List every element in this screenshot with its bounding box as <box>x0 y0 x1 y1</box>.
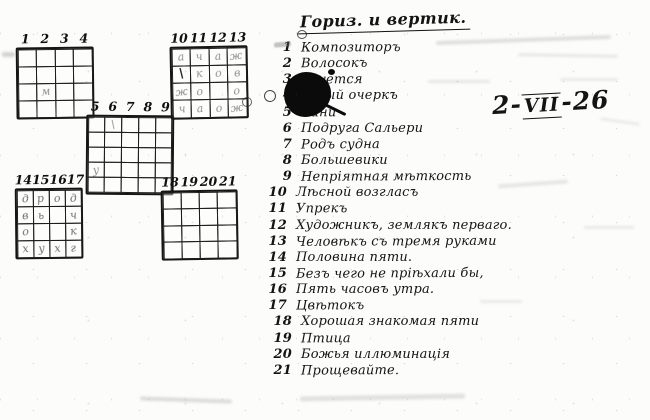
clue-row: 21Прощевайте. <box>266 363 512 379</box>
clue-row: 9Непріятная мѣткость <box>266 169 512 185</box>
ghost-smudge <box>584 226 634 229</box>
grid-cell <box>121 162 139 178</box>
grid-cell <box>33 223 50 241</box>
crossword-grid-top-right: 10111213 ачаж\ковжоочаож <box>169 25 249 119</box>
clue-row: 10Лѣсной возгласъ <box>261 185 512 201</box>
grid-column-numbers: 56789 <box>86 95 174 116</box>
date-month-roman: VII <box>521 92 562 119</box>
grid-cell <box>54 48 74 66</box>
grid-cell <box>218 240 238 258</box>
grid-cell <box>73 65 93 83</box>
grid-cell: о <box>48 189 65 207</box>
pencil-letter: в <box>233 66 241 80</box>
clue-text: Прощевайте. <box>301 363 399 379</box>
grid-cell <box>17 49 37 67</box>
grid-cell <box>181 241 201 259</box>
pencil-letter: г <box>70 242 77 256</box>
clue-number: 13 <box>261 234 287 249</box>
grid-cell: о <box>208 64 228 83</box>
grid-cell <box>87 147 105 163</box>
grid-cell <box>88 116 106 132</box>
clue-text: Человѣкъ съ тремя руками <box>296 233 497 249</box>
clue-number: 19 <box>266 331 292 346</box>
grid-cell <box>138 117 156 133</box>
clue-text: Упрекъ <box>296 202 347 217</box>
pencil-letter: в <box>21 209 29 223</box>
pencil-letter: у <box>37 242 45 256</box>
grid-cell <box>138 147 156 163</box>
grid-column-number: 7 <box>126 100 135 113</box>
grid-column-number: 15 <box>32 173 50 186</box>
clue-row: 11Упрекъ <box>261 201 512 217</box>
grid-cell <box>199 208 219 226</box>
pencil-letter: \ <box>111 118 116 131</box>
grid-cell <box>48 206 65 224</box>
grid-cell <box>199 241 219 259</box>
grid-cell <box>138 162 156 178</box>
grid-column-numbers: 10111213 <box>169 25 247 46</box>
grid-column-number: 6 <box>108 100 117 113</box>
grid-cell: р <box>32 189 49 207</box>
grid-cell <box>36 65 56 83</box>
grid-column-number: 21 <box>219 175 237 188</box>
pencil-letter: о <box>215 101 223 115</box>
grid-cell: д <box>16 190 33 208</box>
grid-cell <box>73 48 93 66</box>
grid-cell <box>199 191 219 209</box>
crossword-grid-bottom-left: 14151617 дродвьчокхухг <box>15 168 84 260</box>
grid-cell: д <box>64 189 81 207</box>
grid-cell: в <box>16 206 33 224</box>
grid-cell <box>163 241 183 259</box>
clue-text: Пять часовъ утра. <box>296 282 434 297</box>
grid-cell <box>121 177 139 193</box>
pencil-letter: о <box>53 191 61 205</box>
grid-cell: г <box>65 239 82 257</box>
grid-column-number: 1 <box>21 33 30 46</box>
grid-cell: к <box>65 223 82 241</box>
clue-text: Большевики <box>301 153 388 168</box>
pencil-letter: ч <box>69 208 77 222</box>
grid-cells <box>161 189 239 260</box>
grid-column-number: 12 <box>209 31 227 44</box>
grid-cell <box>55 99 75 117</box>
clue-number: 18 <box>266 314 292 329</box>
grid-cell: х <box>49 240 66 258</box>
grid-cell <box>104 147 122 163</box>
grid-cell <box>181 224 201 242</box>
grid-column-number: 9 <box>161 101 170 114</box>
clue-number: 14 <box>261 250 287 265</box>
grid-column-number: 17 <box>67 173 85 186</box>
grid-cell <box>54 65 74 83</box>
clue-text: Половина пяти. <box>296 250 412 265</box>
grid-column-numbers: 14151617 <box>15 168 83 189</box>
grid-column-number: 14 <box>15 174 33 187</box>
ghost-smudge <box>428 80 490 83</box>
grid-column-number: 10 <box>170 32 188 45</box>
pencil-letter: ч <box>195 50 203 64</box>
grid-cell <box>181 208 201 226</box>
clue-row: 8Большевики <box>266 153 512 169</box>
grid-cell <box>36 99 56 117</box>
clue-number: 20 <box>266 347 292 362</box>
grid-cell <box>121 116 139 132</box>
ghost-smudge <box>140 396 232 403</box>
pencil-letter: д <box>21 192 29 206</box>
ink-ring-mark <box>242 97 252 107</box>
pencil-letter: ж <box>229 49 243 63</box>
grid-cell: о <box>209 99 229 118</box>
clue-number: 21 <box>266 363 292 378</box>
ghost-smudge <box>600 117 640 126</box>
clue-text: Лѣсной возгласъ <box>296 185 419 200</box>
grid-cell <box>121 147 139 163</box>
clue-row: 18Хорошая знакомая пяти <box>266 314 512 330</box>
clue-text: Божья иллюминація <box>301 347 450 362</box>
grid-cell: у <box>33 240 50 258</box>
grid-cell: а <box>191 99 211 118</box>
grid-cell <box>121 132 139 148</box>
grid-cells: дродвьчокхухг <box>15 188 84 260</box>
grid-column-number: 3 <box>60 32 69 45</box>
pencil-letter: у <box>92 163 100 177</box>
grid-cell <box>87 177 105 193</box>
ghost-smudge <box>436 35 611 45</box>
clue-row: 13Человѣкъ съ тремя руками <box>261 234 512 250</box>
clue-row: 2Волосокъ <box>266 56 512 72</box>
grid-column-number: 19 <box>180 176 198 189</box>
grid-cell: ж <box>227 47 247 66</box>
clue-number: 12 <box>261 218 287 233</box>
grid-cell <box>163 225 183 243</box>
ghost-smudge <box>480 300 522 303</box>
clue-number: 10 <box>261 185 287 200</box>
clue-number: 6 <box>266 121 292 136</box>
grid-cell: ч <box>64 206 81 224</box>
grid-cell: у <box>87 162 105 178</box>
clue-text: Птица <box>301 331 351 346</box>
grid-column-numbers: 1234 <box>15 27 93 48</box>
clue-number: 7 <box>266 137 292 152</box>
clue-row: 14Половина пяти. <box>261 250 512 266</box>
clue-row: 7Родъ судна <box>266 137 512 153</box>
clue-number: 9 <box>266 169 292 184</box>
clue-row: 6Подруга Сальери <box>266 121 512 137</box>
pencil-letter: к <box>196 67 204 81</box>
grid-cell <box>217 224 237 242</box>
grid-cell: ь <box>32 206 49 224</box>
pencil-letter: а <box>196 102 204 116</box>
pencil-letter: а <box>214 50 222 64</box>
grid-cell <box>209 82 229 101</box>
pencil-letter: \ <box>178 67 185 82</box>
date-annotation: 2-VII-26 <box>491 85 610 120</box>
grid-cell: к <box>190 65 210 84</box>
grid-cell <box>199 224 219 242</box>
clue-row: 15Безъ чего не пріѣхали бы, <box>261 266 512 282</box>
grid-column-number: 16 <box>49 173 67 186</box>
pencil-letter: х <box>54 242 62 256</box>
clue-text: Композиторъ <box>301 40 401 56</box>
clue-text: Художникъ, землякъ перваго. <box>296 218 512 233</box>
date-day: 2- <box>491 90 522 121</box>
clue-row: 17Цвѣтокъ <box>261 298 512 314</box>
grid-cell <box>138 132 156 148</box>
grid-cell: ч <box>172 100 192 119</box>
clue-number: 11 <box>261 201 287 216</box>
clue-number: 2 <box>266 56 292 71</box>
grid-cell: в <box>227 64 247 83</box>
grid-cell <box>137 177 155 193</box>
pencil-letter: ч <box>178 102 186 116</box>
grid-cell: \ <box>104 116 122 132</box>
pencil-letter: ь <box>37 208 44 222</box>
grid-cell <box>155 147 173 163</box>
grid-column-number: 13 <box>229 31 247 44</box>
grid-cell <box>36 48 56 66</box>
grid-cell <box>104 131 122 147</box>
clue-row: 16Пять часовъ утра. <box>261 282 512 298</box>
grid-column-number: 11 <box>190 32 208 45</box>
ghost-smudge <box>2 52 15 57</box>
grid-cell: а <box>171 48 191 67</box>
scanned-crossword-page: 1234 м 56789 \у 10111213 ачаж\ковжоочаож… <box>0 0 650 420</box>
grid-cell <box>18 100 38 118</box>
grid-cells: ачаж\ковжоочаож <box>169 45 248 119</box>
crossword-grid-top-left: 1234 м <box>15 27 94 120</box>
grid-cell <box>217 191 237 209</box>
clue-row: 12Художникъ, землякъ перваго. <box>261 218 512 234</box>
ink-ring-mark <box>297 30 307 39</box>
grid-column-number: 8 <box>144 101 153 114</box>
grid-cell: о <box>190 82 210 101</box>
clue-text: Подруга Сальери <box>301 121 423 136</box>
clue-row: 19Птица <box>266 331 512 347</box>
pencil-letter: а <box>177 50 185 64</box>
clue-text: Родъ судна <box>301 137 380 152</box>
clue-row: 20Божья иллюминація <box>266 347 512 363</box>
ghost-smudge <box>300 394 465 402</box>
grid-cell <box>155 132 173 148</box>
pencil-letter: д <box>69 191 77 205</box>
grid-cell <box>104 162 122 178</box>
grid-column-number: 2 <box>40 33 49 46</box>
clue-text: Непріятная мѣткость <box>301 169 472 185</box>
clue-text: Хорошая знакомая пяти <box>301 314 479 329</box>
pencil-letter: х <box>22 242 30 256</box>
grid-cell: ч <box>190 47 210 66</box>
pencil-letter: ж <box>175 84 189 98</box>
clue-text: Безъ чего не пріѣхали бы, <box>296 266 484 282</box>
grid-cell: \ <box>171 65 191 84</box>
pencil-letter: к <box>69 225 77 239</box>
grid-cell: ж <box>172 82 192 101</box>
grid-cell <box>162 208 182 226</box>
crossword-grid-bottom-right: 18192021 <box>160 169 239 260</box>
clue-text: Волосокъ <box>301 56 368 72</box>
grid-cell <box>104 177 122 193</box>
pencil-letter: о <box>196 84 204 98</box>
grid-cell <box>55 82 75 100</box>
grid-cells: м <box>16 47 95 120</box>
grid-cell <box>87 131 105 147</box>
grid-cell: а <box>208 47 228 66</box>
grid-cell: х <box>17 240 34 258</box>
clue-text: Цвѣтокъ <box>296 298 364 313</box>
clue-number: 17 <box>261 298 287 313</box>
pencil-letter: о <box>21 225 29 239</box>
page-title: Гориз. и вертик. <box>298 8 471 35</box>
grid-column-number: 5 <box>91 100 100 113</box>
grid-cell <box>162 192 182 210</box>
pencil-letter: м <box>41 85 52 99</box>
clue-number: 8 <box>266 153 292 168</box>
clue-number: 15 <box>261 266 287 281</box>
grid-cell <box>217 207 237 225</box>
grid-cell <box>18 83 38 101</box>
pencil-letter: р <box>37 192 45 206</box>
grid-column-number: 18 <box>161 176 179 189</box>
date-year: -26 <box>561 85 611 116</box>
grid-column-number: 4 <box>79 32 88 45</box>
pencil-letter: о <box>214 67 222 81</box>
grid-cell <box>17 66 37 84</box>
grid-cell: о <box>17 223 34 241</box>
clue-number: 16 <box>261 282 287 297</box>
grid-column-numbers: 18192021 <box>160 169 237 190</box>
grid-cell <box>49 223 66 241</box>
pencil-letter: о <box>233 84 241 98</box>
ghost-smudge <box>560 78 618 81</box>
grid-column-number: 20 <box>200 175 218 188</box>
grid-cell: м <box>36 82 56 100</box>
grid-cell <box>180 191 200 209</box>
ghost-smudge <box>518 53 618 58</box>
